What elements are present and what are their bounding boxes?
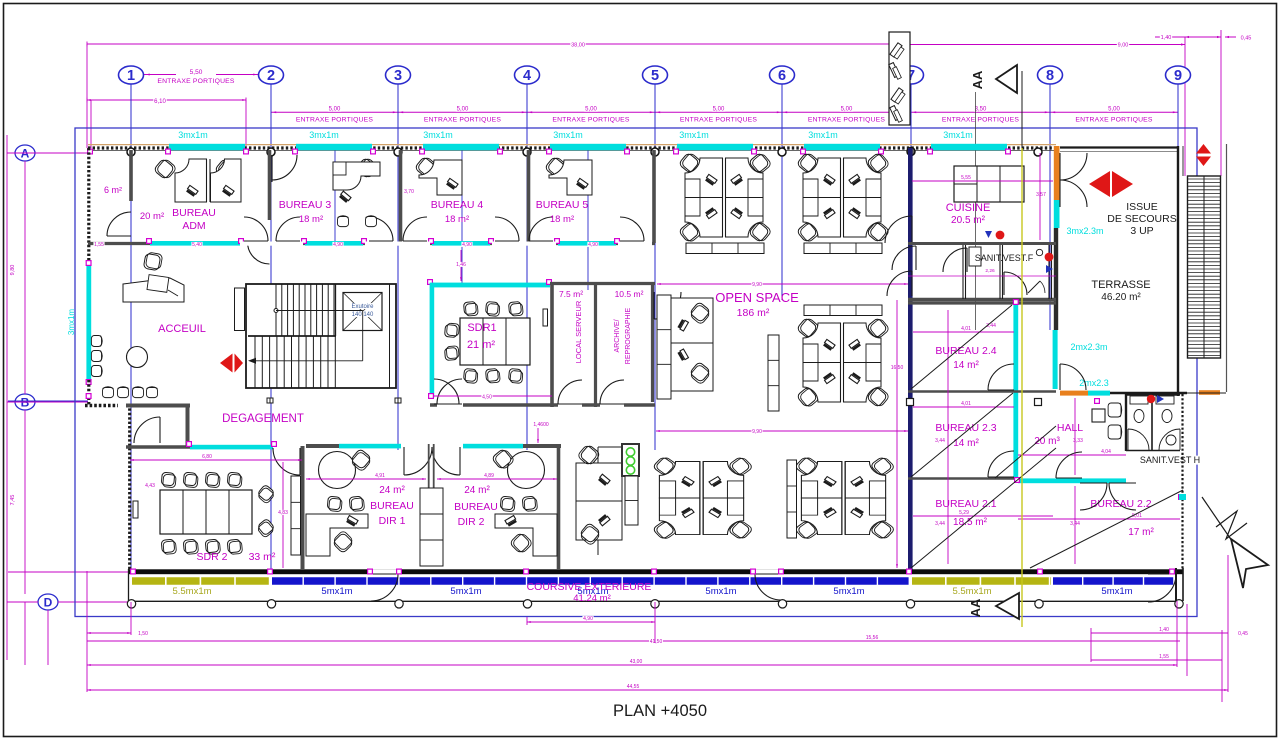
svg-text:5,55: 5,55	[961, 175, 971, 181]
svg-text:ENTRAXE PORTIQUES: ENTRAXE PORTIQUES	[942, 117, 1020, 124]
svg-text:43,00: 43,00	[630, 659, 643, 665]
svg-text:3,70: 3,70	[404, 189, 414, 195]
svg-text:24 m²: 24 m²	[379, 485, 405, 496]
svg-text:5mx1m: 5mx1m	[1101, 586, 1132, 597]
svg-text:1,40: 1,40	[1161, 35, 1172, 41]
svg-text:0,45: 0,45	[1238, 631, 1248, 637]
svg-text:6,80: 6,80	[202, 454, 212, 460]
svg-text:5,29: 5,29	[959, 510, 969, 516]
svg-text:4,04: 4,04	[1101, 449, 1111, 455]
svg-text:4,90: 4,90	[583, 616, 593, 622]
svg-text:AA: AA	[970, 70, 985, 89]
svg-text:41.24 m²: 41.24 m²	[573, 593, 611, 604]
svg-text:2: 2	[267, 68, 275, 84]
svg-text:REPROGRAPHIE: REPROGRAPHIE	[625, 307, 632, 364]
svg-text:3: 3	[394, 68, 402, 84]
svg-text:ENTRAXE PORTIQUES: ENTRAXE PORTIQUES	[680, 117, 758, 124]
svg-text:4: 4	[523, 68, 531, 84]
svg-text:7,45: 7,45	[10, 495, 16, 506]
svg-text:20 m²: 20 m²	[140, 211, 164, 222]
svg-text:5.5mx1m: 5.5mx1m	[172, 586, 211, 597]
svg-text:3mx1m: 3mx1m	[178, 130, 208, 140]
svg-text:4,90: 4,90	[588, 242, 598, 248]
svg-text:4,90: 4,90	[333, 242, 343, 248]
svg-text:ACCEUIL: ACCEUIL	[158, 323, 206, 335]
svg-text:ENTRAXE PORTIQUES: ENTRAXE PORTIQUES	[552, 117, 630, 124]
svg-text:8: 8	[1046, 68, 1054, 84]
svg-text:4,50: 4,50	[482, 395, 492, 401]
svg-text:9,90: 9,90	[752, 282, 762, 288]
svg-text:2,26: 2,26	[985, 268, 995, 274]
svg-text:4,91: 4,91	[375, 473, 385, 479]
svg-text:DIR 1: DIR 1	[379, 515, 406, 527]
svg-text:6,10: 6,10	[154, 99, 166, 105]
svg-text:5,00: 5,00	[713, 107, 725, 113]
svg-text:PLAN +4050: PLAN +4050	[613, 702, 707, 720]
svg-text:HALL: HALL	[1057, 422, 1083, 434]
svg-text:5mx1m: 5mx1m	[705, 586, 736, 597]
svg-text:4,01: 4,01	[961, 326, 971, 332]
svg-text:1,55: 1,55	[94, 242, 104, 248]
svg-text:20.5 m²: 20.5 m²	[951, 215, 986, 226]
svg-text:DE SECOURS: DE SECOURS	[1107, 213, 1176, 225]
svg-text:SANIT.VEST H: SANIT.VEST H	[1140, 455, 1200, 465]
svg-text:BUREAU 2.4: BUREAU 2.4	[935, 345, 996, 357]
svg-text:BUREAU 2.2: BUREAU 2.2	[1090, 498, 1151, 510]
svg-text:CUISINE: CUISINE	[946, 202, 991, 214]
svg-text:1,50: 1,50	[138, 631, 148, 637]
svg-text:ENTRAXE PORTIQUES: ENTRAXE PORTIQUES	[296, 117, 374, 124]
svg-text:TERRASSE: TERRASSE	[1091, 279, 1150, 291]
svg-text:41,50: 41,50	[650, 639, 663, 645]
svg-text:BUREAU: BUREAU	[370, 500, 414, 512]
svg-text:3,44: 3,44	[935, 438, 945, 444]
svg-text:BUREAU 5: BUREAU 5	[536, 199, 589, 211]
svg-text:4,90: 4,90	[462, 242, 472, 248]
svg-text:5,50: 5,50	[190, 69, 203, 76]
svg-text:9,90: 9,90	[752, 429, 762, 435]
svg-text:B: B	[21, 396, 30, 410]
svg-text:SDR1: SDR1	[467, 322, 496, 334]
svg-text:ENTRAXE PORTIQUES: ENTRAXE PORTIQUES	[157, 78, 235, 85]
svg-text:2mx2.3m: 2mx2.3m	[1070, 342, 1107, 352]
svg-text:3,44: 3,44	[986, 323, 996, 329]
svg-text:5mx1m: 5mx1m	[321, 586, 352, 597]
svg-text:BUREAU: BUREAU	[172, 207, 216, 219]
svg-text:1,4600: 1,4600	[533, 422, 549, 428]
svg-text:9: 9	[1174, 68, 1182, 84]
svg-text:4,83: 4,83	[278, 510, 288, 516]
svg-text:1,40: 1,40	[1159, 627, 1169, 633]
svg-text:COURSIVE EXTERIEURE: COURSIVE EXTERIEURE	[527, 581, 652, 593]
svg-text:5mx1m: 5mx1m	[833, 586, 864, 597]
svg-text:6: 6	[778, 68, 786, 84]
svg-text:3mx1m: 3mx1m	[553, 130, 583, 140]
svg-text:3mx1m: 3mx1m	[309, 130, 339, 140]
svg-text:LOCAL SERVEUR: LOCAL SERVEUR	[574, 300, 583, 363]
svg-text:5,00: 5,00	[841, 107, 853, 113]
svg-text:DIR 2: DIR 2	[458, 516, 485, 528]
svg-text:3,57: 3,57	[1036, 192, 1046, 198]
svg-text:ISSUE: ISSUE	[1126, 201, 1158, 213]
svg-text:18 m²: 18 m²	[550, 214, 574, 225]
svg-text:3,44: 3,44	[935, 521, 945, 527]
svg-text:5,00: 5,00	[585, 107, 597, 113]
svg-text:AA: AA	[968, 598, 983, 617]
svg-text:1,55: 1,55	[1159, 654, 1169, 660]
svg-text:5mx1m: 5mx1m	[450, 586, 481, 597]
svg-text:ARCHIVE/: ARCHIVE/	[614, 319, 621, 352]
svg-text:15,56: 15,56	[866, 635, 879, 641]
svg-text:6 m²: 6 m²	[104, 185, 122, 195]
svg-text:1: 1	[127, 68, 135, 84]
svg-text:SANIT.VEST.F: SANIT.VEST.F	[975, 253, 1034, 263]
svg-text:14 m²: 14 m²	[953, 438, 979, 449]
svg-text:A: A	[21, 147, 30, 161]
svg-text:SDR 2: SDR 2	[197, 551, 228, 563]
svg-text:10.5 m²: 10.5 m²	[615, 289, 644, 299]
svg-text:4,43: 4,43	[145, 483, 155, 489]
svg-text:3mx2.3m: 3mx2.3m	[1066, 226, 1103, 236]
svg-text:5,00: 5,00	[457, 107, 469, 113]
svg-text:24 m²: 24 m²	[464, 485, 490, 496]
svg-text:5.5mx1m: 5.5mx1m	[952, 586, 991, 597]
svg-text:3mx1m: 3mx1m	[423, 130, 453, 140]
svg-text:21 m²: 21 m²	[467, 339, 495, 351]
svg-text:D: D	[44, 596, 53, 610]
svg-text:38,00: 38,00	[571, 43, 585, 49]
svg-text:DEGAGEMENT: DEGAGEMENT	[222, 413, 304, 425]
svg-text:3,50: 3,50	[975, 107, 987, 113]
svg-text:5,40: 5,40	[192, 242, 202, 248]
svg-text:BUREAU: BUREAU	[454, 501, 498, 513]
svg-text:5,00: 5,00	[1108, 107, 1120, 113]
svg-text:33 m²: 33 m²	[249, 551, 276, 563]
svg-text:14 m²: 14 m²	[953, 360, 979, 371]
svg-text:3 UP: 3 UP	[1130, 225, 1153, 237]
svg-text:Exutoire: Exutoire	[351, 304, 374, 310]
svg-text:3mx1m: 3mx1m	[808, 130, 838, 140]
svg-text:3mx1m: 3mx1m	[67, 309, 76, 336]
svg-text:OPEN SPACE: OPEN SPACE	[715, 290, 799, 305]
svg-text:1,46: 1,46	[456, 262, 466, 268]
svg-text:5: 5	[651, 68, 659, 84]
svg-text:186 m²: 186 m²	[737, 307, 770, 319]
svg-text:ADM: ADM	[182, 220, 205, 232]
svg-text:46.20 m²: 46.20 m²	[1101, 292, 1141, 303]
svg-text:44,55: 44,55	[627, 684, 640, 690]
svg-text:BUREAU 4: BUREAU 4	[431, 199, 484, 211]
svg-text:18 m²: 18 m²	[299, 214, 323, 225]
svg-text:ENTRAXE PORTIQUES: ENTRAXE PORTIQUES	[1075, 117, 1153, 124]
svg-text:4,89: 4,89	[484, 473, 494, 479]
svg-text:9,00: 9,00	[1118, 43, 1129, 49]
svg-text:3mx1m: 3mx1m	[679, 130, 709, 140]
svg-text:9,80: 9,80	[10, 265, 16, 276]
svg-text:3mx1m: 3mx1m	[943, 130, 973, 140]
svg-text:4,01: 4,01	[961, 401, 971, 407]
svg-text:7.5 m²: 7.5 m²	[559, 289, 583, 299]
svg-text:0,45: 0,45	[1241, 36, 1252, 42]
svg-text:18 m²: 18 m²	[445, 214, 469, 225]
svg-text:BUREAU 3: BUREAU 3	[279, 199, 332, 211]
svg-text:ENTRAXE PORTIQUES: ENTRAXE PORTIQUES	[808, 117, 886, 124]
svg-text:ENTRAXE PORTIQUES: ENTRAXE PORTIQUES	[424, 117, 502, 124]
svg-text:17 m²: 17 m²	[1128, 527, 1154, 538]
svg-text:5,00: 5,00	[329, 107, 341, 113]
